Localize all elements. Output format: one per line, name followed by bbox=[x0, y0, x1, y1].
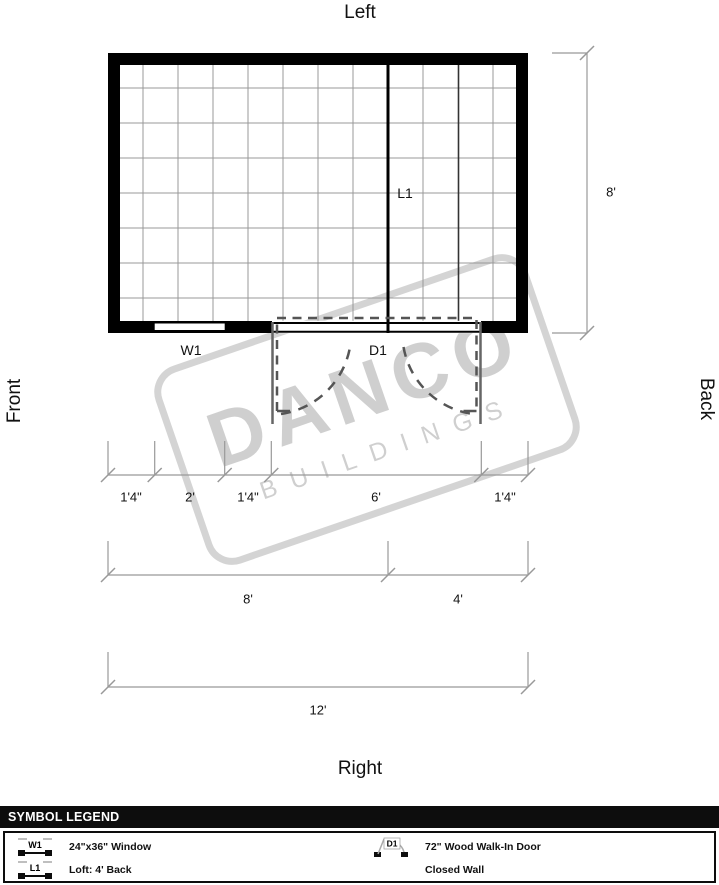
grid-lines bbox=[120, 65, 516, 321]
dimension-row-split bbox=[101, 541, 535, 582]
closed-wall-symbol-icon bbox=[373, 861, 409, 879]
dimension-row-segments bbox=[101, 441, 535, 482]
legend-item-door: D1 72" Wood Walk-In Door bbox=[373, 836, 541, 858]
legend-item-window: W1 24"x36" Window bbox=[17, 836, 151, 858]
dim-label: 12' bbox=[310, 703, 327, 718]
dim-label: 8' bbox=[243, 592, 253, 607]
dim-label: 1'4" bbox=[494, 490, 516, 505]
svg-text:D1: D1 bbox=[387, 839, 398, 849]
floor-plan-page: DANCO BUILDINGS bbox=[0, 0, 719, 885]
legend-item-loft: L1 Loft: 4' Back bbox=[17, 859, 132, 881]
legend-header: SYMBOL LEGEND bbox=[0, 806, 719, 828]
legend-body: W1 24"x36" Window D1 72" Wood Walk-In Do… bbox=[3, 831, 716, 883]
orientation-right-label: Back bbox=[695, 378, 717, 420]
loft-symbol-icon: L1 bbox=[17, 860, 53, 880]
dimension-side-height bbox=[552, 46, 594, 340]
legend-item-label: 72" Wood Walk-In Door bbox=[425, 841, 541, 853]
legend-item-label: Closed Wall bbox=[425, 864, 484, 876]
dim-label: 2' bbox=[185, 490, 195, 505]
legend-item-closed-wall: Closed Wall bbox=[373, 859, 484, 881]
dim-label: 1'4" bbox=[120, 490, 142, 505]
legend-item-label: 24"x36" Window bbox=[69, 841, 151, 853]
window-symbol-icon: W1 bbox=[17, 837, 53, 857]
dim-label: 4' bbox=[453, 592, 463, 607]
window-opening bbox=[155, 324, 225, 331]
dim-label-side-height: 8' bbox=[606, 185, 616, 200]
svg-text:L1: L1 bbox=[30, 863, 41, 873]
loft-label: L1 bbox=[397, 185, 413, 201]
svg-text:W1: W1 bbox=[28, 840, 42, 850]
legend-item-label: Loft: 4' Back bbox=[69, 864, 132, 876]
door-swing bbox=[273, 318, 481, 424]
window-label: W1 bbox=[181, 342, 202, 358]
dim-label: 1'4" bbox=[237, 490, 259, 505]
dim-label: 6' bbox=[371, 490, 381, 505]
orientation-bottom-label: Right bbox=[338, 758, 382, 780]
dimension-row-total bbox=[101, 652, 535, 694]
floor-plan-drawing bbox=[0, 0, 719, 885]
orientation-top-label: Left bbox=[344, 2, 376, 24]
door-opening bbox=[272, 321, 481, 333]
door-symbol-icon: D1 bbox=[373, 837, 409, 857]
door-label: D1 bbox=[369, 342, 387, 358]
orientation-left-label: Front bbox=[4, 379, 26, 423]
